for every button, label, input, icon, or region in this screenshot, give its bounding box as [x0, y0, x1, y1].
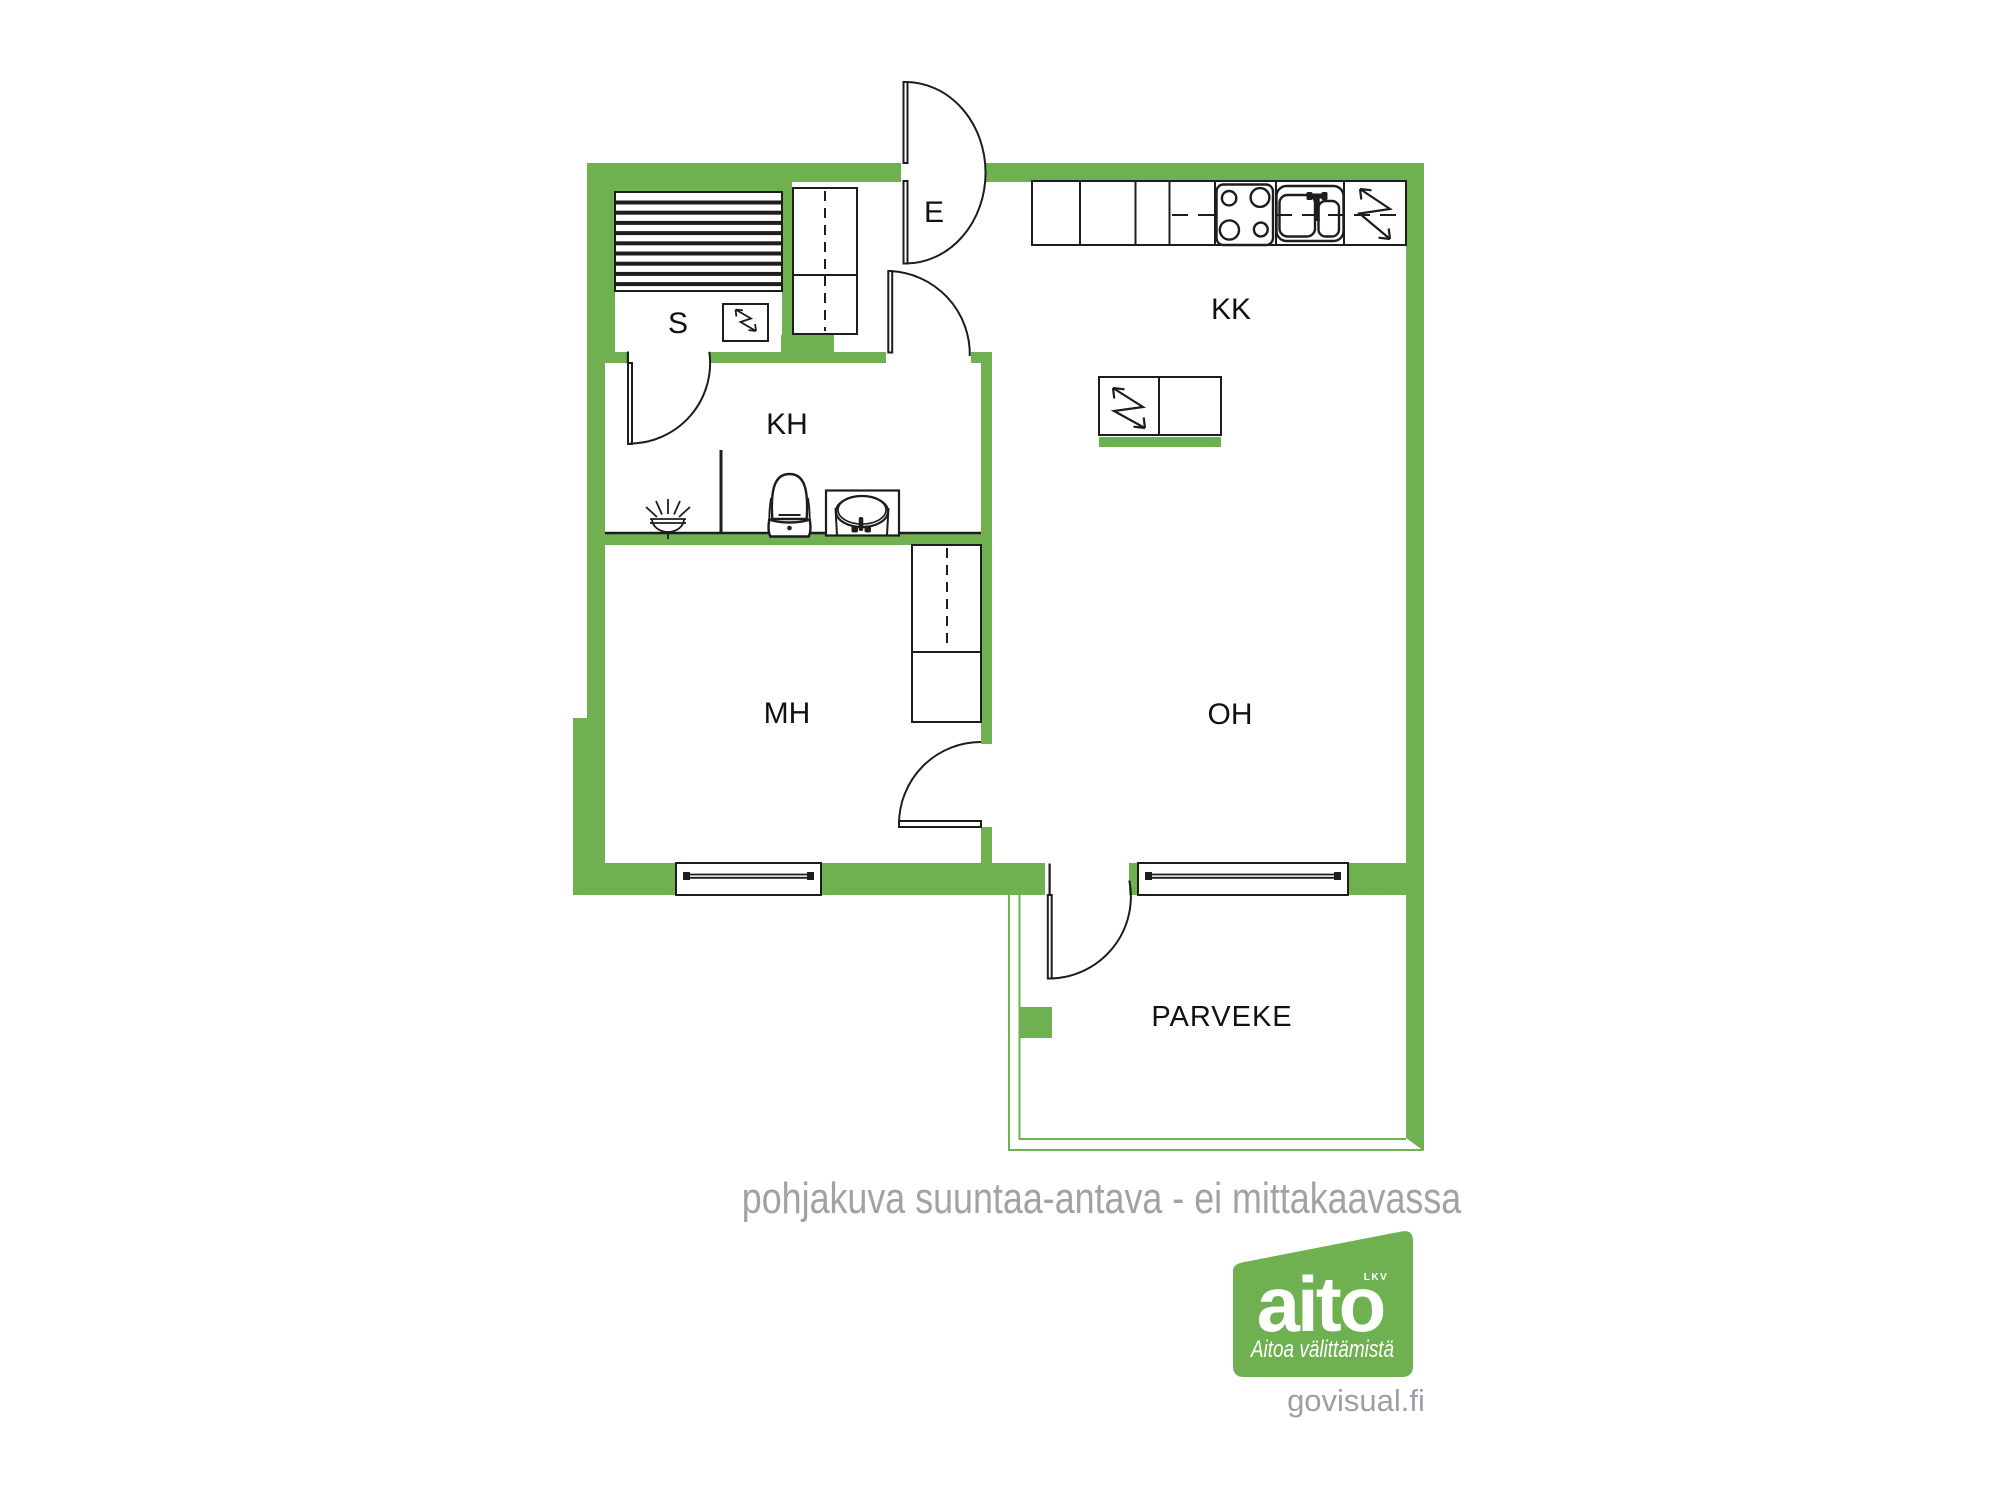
svg-text:KH: KH: [766, 408, 808, 441]
svg-text:pohjakuva suuntaa-antava - ei: pohjakuva suuntaa-antava - ei mittakaava…: [742, 1174, 1462, 1223]
svg-text:LKV: LKV: [1364, 1272, 1389, 1283]
svg-text:MH: MH: [764, 697, 811, 730]
svg-text:Aitoa välittämistä: Aitoa välittämistä: [1249, 1335, 1394, 1363]
svg-text:KK: KK: [1211, 293, 1251, 326]
svg-text:OH: OH: [1208, 698, 1253, 731]
svg-text:E: E: [924, 196, 944, 229]
svg-text:S: S: [668, 307, 688, 340]
svg-text:govisual.fi: govisual.fi: [1287, 1383, 1425, 1418]
svg-text:PARVEKE: PARVEKE: [1151, 1001, 1292, 1033]
